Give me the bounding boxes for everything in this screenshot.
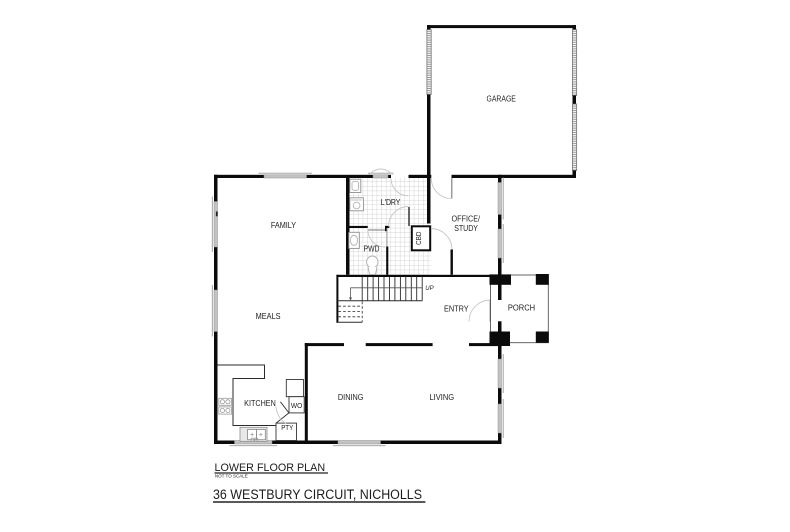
svg-text:WO: WO — [291, 403, 303, 410]
svg-text:LIVING: LIVING — [429, 392, 454, 402]
svg-text:PTY: PTY — [281, 425, 293, 432]
svg-text:36 WESTBURY CIRCUIT, NICHOLLS: 36 WESTBURY CIRCUIT, NICHOLLS — [213, 487, 422, 502]
svg-text:KITCHEN: KITCHEN — [244, 398, 276, 408]
svg-text:UP: UP — [425, 285, 434, 292]
svg-text:ENTRY: ENTRY — [444, 304, 469, 314]
svg-text:STUDY: STUDY — [454, 223, 478, 233]
svg-text:NOT TO SCALE: NOT TO SCALE — [215, 473, 248, 479]
svg-text:MEALS: MEALS — [256, 311, 281, 321]
svg-text:PWD: PWD — [364, 244, 380, 254]
svg-text:DINING: DINING — [338, 392, 364, 402]
svg-text:GARAGE: GARAGE — [487, 93, 517, 103]
svg-text:L'DRY: L'DRY — [381, 197, 401, 207]
svg-text:CBD: CBD — [416, 232, 423, 246]
svg-text:FAMILY: FAMILY — [271, 220, 297, 230]
svg-text:PORCH: PORCH — [508, 303, 535, 313]
